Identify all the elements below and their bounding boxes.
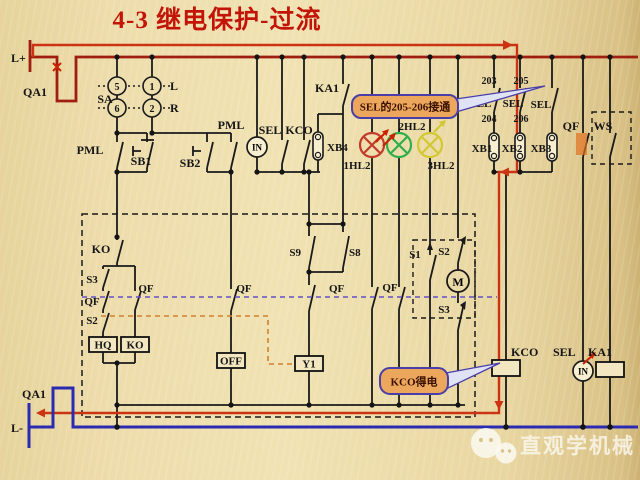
sb1-label: SB1 [131,154,152,168]
qf-hq-label: QF [84,296,100,308]
sel2-label: SEL [503,98,524,110]
s1-label: S1 [409,249,421,261]
qf-off-label: QF [236,283,252,295]
in-meter-top-label: IN [252,143,263,153]
relay-protection-schematic: 4-3 继电保护-过流 [0,0,640,480]
xb2-label: XB2 [502,143,523,155]
callout-kco-text: KCO得电 [390,375,437,389]
l-plus-label: L+ [11,51,26,65]
qf-right-label: QF [563,119,580,133]
sa-label: SA [97,92,113,106]
callout-kco-energized: KCO得电 [380,363,500,394]
xb4-label: XB4 [327,142,348,154]
sb2-label: SB2 [180,156,201,170]
wechat-icon [471,428,517,464]
s2m-label: S2 [438,246,450,258]
qa1-bottom-label: QA1 [22,387,46,401]
qf-highlight [576,133,587,155]
pml-contact-a-label: PML [77,143,104,157]
pml-contact-b-label: PML [218,118,245,132]
ka1-coil-label: KA1 [588,345,612,359]
motor-label: M [452,275,463,289]
s2-label: S2 [86,315,98,327]
sel-contact-label: SEL [259,123,282,137]
terminal-203: 203 [482,76,497,87]
ws-label: WS [594,119,613,133]
sa-pin-1: 1 [150,82,155,93]
y1-coil-label: Y1 [302,359,315,371]
ka1-coil-box [596,362,624,377]
sa-pin-5: 5 [115,82,120,93]
page-title: 4-3 继电保护-过流 [113,5,322,34]
qa1-top-label: QA1 [23,85,47,99]
terminal-205: 205 [514,76,529,87]
s3-label: S3 [86,274,98,286]
s3m-label: S3 [438,304,450,316]
ko-coil-label: KO [126,340,144,352]
terminal-206: 206 [514,114,529,125]
lamp-yellow [418,133,442,157]
lamp3-label: 3HL2 [428,160,455,172]
devices: IN M IN [89,137,624,381]
xb1-label: XB1 [472,143,493,155]
in-meter-bottom-label: IN [578,367,589,377]
xb3-label: XB3 [531,143,552,155]
s8-label: S8 [349,247,361,259]
sa-pos-left: L [170,79,178,93]
sa-pin-6: 6 [115,104,120,115]
s9-label: S9 [289,247,301,259]
l-minus-label: L- [11,421,23,435]
qf-ko-label: QF [138,283,154,295]
kco-coil-box [492,360,520,376]
off-coil-label: OFF [220,356,242,368]
hq-coil-label: HQ [94,340,112,352]
terminal-204: 204 [482,114,497,125]
lamp2-label: 2HL2 [399,121,426,133]
sa-selector: 5 1 6 2 L R SA [97,77,179,117]
callout-sel-text: SEL的205-206接通 [360,100,450,114]
watermark: 直观学机械 [471,428,635,464]
ka1-contact-label: KA1 [315,81,339,95]
sa-pin-2: 2 [150,104,155,115]
sel-coil-label: SEL [553,345,576,359]
ko-contact-label: KO [92,242,111,256]
lamp-on-arrow [376,129,396,146]
lamp1-label: 1HL2 [344,160,371,172]
contact-blades [103,84,616,332]
lamp-yellow-arrow [434,120,446,132]
kco-contact-label: KCO [285,123,312,137]
slide-relay-protection-overcurrent: 4-3 继电保护-过流 [0,0,640,480]
qf-y1-label: QF [329,283,345,295]
kco-coil-label: KCO [511,345,538,359]
sa-pos-right: R [170,101,179,115]
watermark-text: 直观学机械 [520,434,635,458]
qf-lamp-label: QF [382,282,398,294]
labels: L+ QA1 L- QA1 PML SB1 SB2 PML SEL KCO KA… [11,51,613,435]
sel3-label: SEL [531,99,552,111]
